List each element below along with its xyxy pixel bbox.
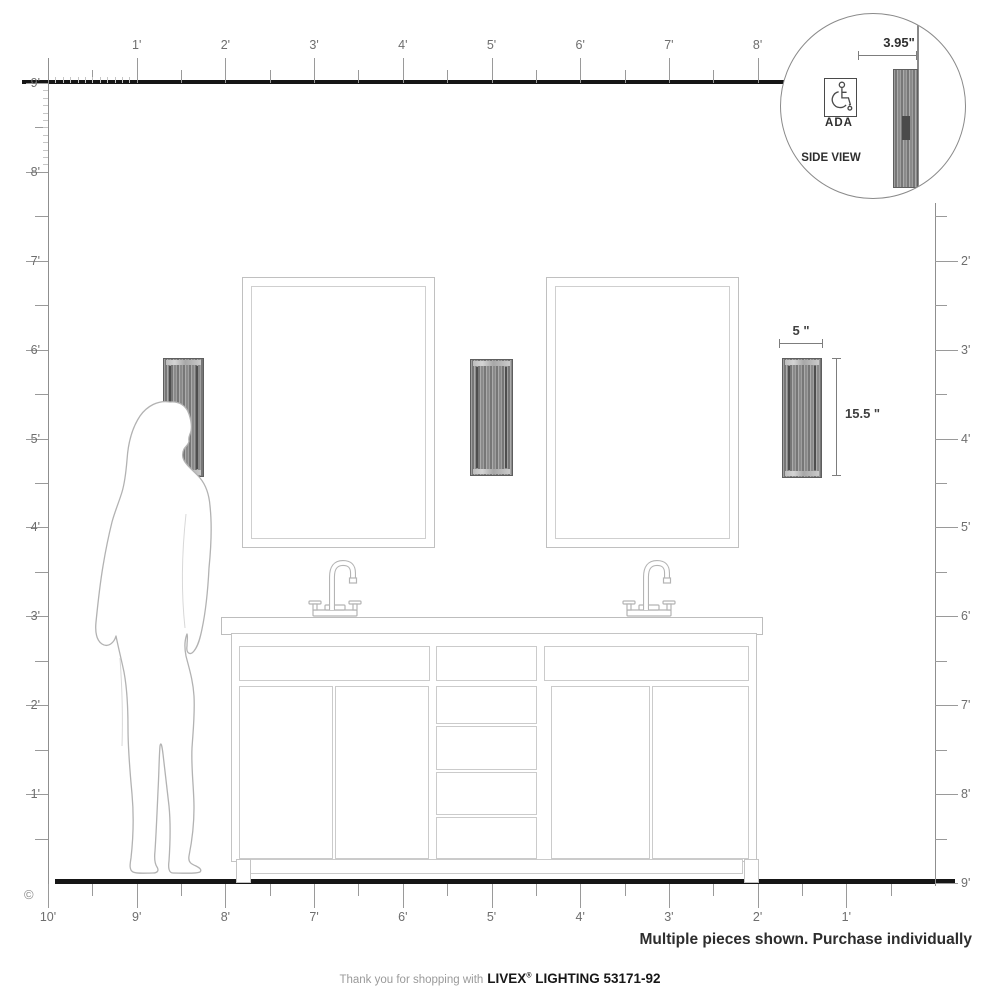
ruler-label: 10' [33,908,63,926]
ruler-tick [935,216,947,217]
ruler-tick [137,58,138,83]
depth-dimension-label: 3.95" [869,35,929,50]
vanity-door [239,686,333,859]
sconce-right-rail [814,366,816,470]
ruler-tick [43,157,48,158]
ruler-label: 3' [299,36,329,54]
ruler-label: 4' [565,908,595,926]
dimension-diagram: 5 " 15.5 " [0,0,1000,1000]
ruler-tick [63,77,64,83]
purchase-note: Multiple pieces shown. Purchase individu… [640,931,972,949]
ruler-tick [935,839,947,840]
vanity-door [335,686,429,859]
ruler-tick [55,77,56,83]
ruler-label: 4' [8,518,40,536]
ruler-tick [935,439,958,440]
ruler-tick [35,661,48,662]
vanity-drawer [436,726,537,770]
ruler-tick [35,216,48,217]
footer-prefix: Thank you for shopping with [339,974,483,986]
ruler-label: 9' [122,908,152,926]
ruler-tick [447,70,448,83]
ruler-tick [935,616,958,617]
ruler-tick [78,77,79,83]
ruler-label: 7' [299,908,329,926]
registered-mark: ® [526,973,531,980]
ruler-tick [492,884,493,908]
sconce-bottom-cap [473,469,510,474]
ruler-tick [713,70,714,83]
sconce-right-rail [505,367,507,468]
width-dimension-line [779,343,823,344]
ruler-tick [225,884,226,908]
vanity-false-front [436,646,537,681]
ruler-label: 2' [743,908,773,926]
ruler-label: 7' [8,252,40,270]
ruler-tick [935,305,947,306]
ruler-tick [35,394,48,395]
vanity-drawer [436,686,537,724]
ruler-tick [403,58,404,83]
height-dimension-line [836,358,837,476]
ruler-tick [802,884,803,896]
faucet-left [285,555,385,619]
mirror-left [242,277,435,548]
ruler-label: 3' [961,341,991,359]
ruler-tick [270,70,271,83]
ruler-tick [35,839,48,840]
ruler-tick [935,705,958,706]
ruler-tick [43,98,48,99]
ruler-label: 8' [210,908,240,926]
sconce-left-rail [788,366,790,470]
ruler-label: 3' [654,908,684,926]
side-view-label: SIDE VIEW [781,152,881,164]
ruler-tick [935,261,958,262]
ada-compliance-box [824,78,857,117]
sconce-left-rail [476,367,478,468]
ruler-label: 9' [8,74,40,92]
ruler-tick [713,884,714,896]
ruler-tick [935,661,947,662]
ruler-tick [181,70,182,83]
ruler-tick [935,483,947,484]
sconce-top-cap [166,360,201,365]
ruler-label: 1' [8,785,40,803]
sconce-top-cap [473,361,510,366]
wall-sconce-center [470,359,513,476]
ruler-label: 1' [831,908,861,926]
ruler-tick [100,77,101,83]
product-number: LIGHTING 53171-92 [535,971,660,986]
ruler-tick [181,884,182,896]
ruler-tick [43,127,48,128]
mirror-left-inner-frame [251,286,426,539]
vanity-leg [236,859,251,883]
ruler-tick [314,58,315,83]
ada-label: ADA [816,117,862,129]
vanity-drawer [436,817,537,859]
ruler-tick [92,77,93,83]
ruler-tick [935,750,947,751]
ruler-tick [48,884,49,908]
ruler-tick [935,350,958,351]
ruler-label: 5' [961,518,991,536]
depth-dimension-line [858,55,917,56]
ruler-tick [43,135,48,136]
ruler-label: 6' [565,36,595,54]
ruler-tick [43,150,48,151]
ruler-tick [137,884,138,908]
left-ruler-line [48,58,49,905]
ruler-label: 2' [210,36,240,54]
ruler-label: 3' [8,607,40,625]
mirror-right [546,277,739,548]
ruler-label: 7' [961,696,991,714]
footer-note: Thank you for shopping withLIVEX® LIGHTI… [0,971,1000,986]
ruler-tick [580,884,581,908]
vanity-drawer [436,772,537,815]
ruler-tick [35,750,48,751]
ruler-label: 6' [8,341,40,359]
ruler-tick [85,77,86,83]
ruler-label: 2' [8,696,40,714]
ruler-tick [270,884,271,896]
ruler-label: 5' [477,908,507,926]
ruler-tick [115,77,116,83]
ruler-label: 7' [654,36,684,54]
ruler-tick [35,483,48,484]
ruler-tick [935,527,958,528]
ruler-tick [43,120,48,121]
ruler-label: 1' [122,36,152,54]
ruler-tick [536,70,537,83]
vanity-door [551,686,650,859]
ruler-tick [669,884,670,908]
ruler-tick [43,90,48,91]
ruler-tick [935,394,947,395]
ruler-tick [935,883,958,884]
ruler-tick [129,77,130,83]
ruler-tick [70,77,71,83]
ruler-label: 8' [961,785,991,803]
wheelchair-icon [826,79,855,114]
ruler-label: 8' [743,36,773,54]
ruler-tick [846,884,847,908]
sconce-mount-notch [902,116,910,140]
height-dimension-label: 15.5 " [845,406,880,421]
ruler-tick [625,70,626,83]
ruler-tick [35,572,48,573]
sconce-bottom-cap [785,471,819,476]
ruler-tick [403,884,404,908]
ruler-tick [935,572,947,573]
ruler-tick [536,884,537,896]
ruler-tick [891,884,892,896]
ruler-tick [122,77,123,83]
ruler-tick [92,884,93,896]
sconce-side-view [893,69,918,188]
ruler-label: 4' [388,36,418,54]
ruler-tick [669,58,670,83]
ruler-tick [35,305,48,306]
vanity-false-front [239,646,430,681]
vanity-leg [744,859,759,883]
ruler-tick [225,58,226,83]
sconce-top-cap [785,360,819,365]
detail-magnifier-circle: 3.95" ADA SIDE VIEW [780,13,966,199]
ruler-tick [758,884,759,908]
ruler-label: 6' [961,607,991,625]
ruler-tick [625,884,626,896]
mirror-right-inner-frame [555,286,730,539]
ruler-tick [358,70,359,83]
width-dimension-label: 5 " [779,323,823,338]
ruler-tick [43,164,48,165]
vanity-plinth [243,859,743,874]
brand-name: LIVEX [487,971,526,986]
vanity-door [652,686,749,859]
ruler-tick [935,794,958,795]
human-scale-figure [82,396,217,883]
ruler-tick [447,884,448,896]
ruler-label: 4' [961,430,991,448]
ruler-label: 6' [388,908,418,926]
faucet-right [599,555,699,619]
ruler-tick [107,77,108,83]
ruler-label: 9' [961,874,991,892]
ruler-tick [43,142,48,143]
vanity-false-front [544,646,749,681]
ruler-label: 5' [477,36,507,54]
ruler-label: 2' [961,252,991,270]
ruler-tick [580,58,581,83]
ruler-tick [758,58,759,83]
ruler-label: 8' [8,163,40,181]
ruler-tick [492,58,493,83]
wall-sconce-dimension-reference [782,358,822,478]
ruler-tick [314,884,315,908]
ruler-label: 5' [8,430,40,448]
ruler-tick [43,105,48,106]
copyright-symbol: © [24,887,34,902]
ruler-tick [358,884,359,896]
ruler-tick [43,113,48,114]
